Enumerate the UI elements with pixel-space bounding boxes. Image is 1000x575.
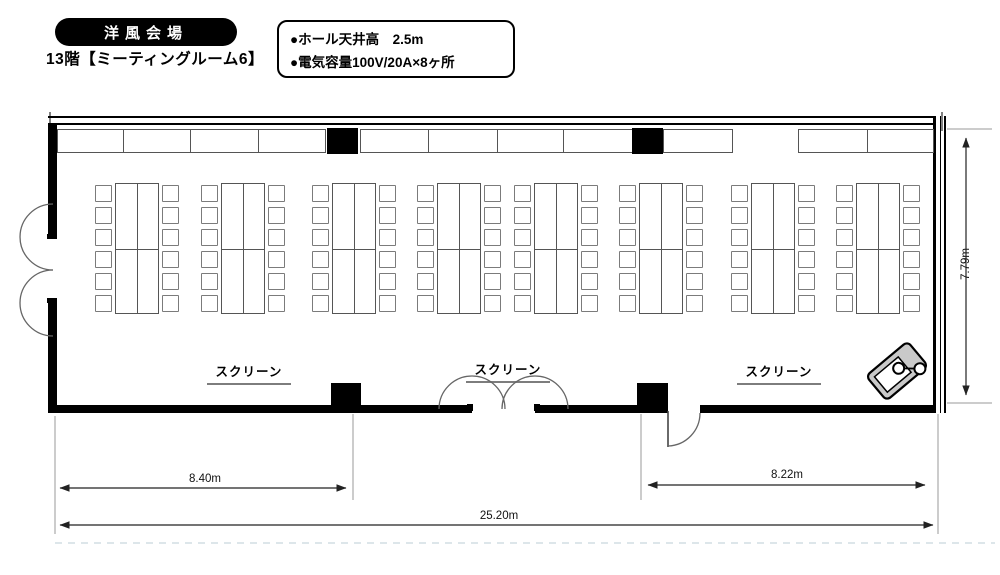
bottom-single-door — [668, 411, 700, 447]
chair-column-right — [798, 185, 815, 312]
wall-counter-cell — [57, 129, 124, 153]
left-wall-upper — [48, 124, 57, 237]
chair-column-left — [836, 185, 853, 312]
chair — [836, 185, 853, 202]
chair — [162, 185, 179, 202]
chair — [731, 251, 748, 268]
table-group — [312, 183, 396, 314]
chair — [619, 251, 636, 268]
table-group — [95, 183, 179, 314]
table-block — [856, 183, 900, 314]
chair — [581, 273, 598, 290]
top-wall — [48, 116, 945, 125]
chair — [798, 207, 815, 224]
chair — [581, 229, 598, 246]
chair — [836, 251, 853, 268]
chair — [731, 185, 748, 202]
table-block — [534, 183, 578, 314]
chair-column-left — [514, 185, 531, 312]
chair — [484, 251, 501, 268]
chair — [619, 229, 636, 246]
chair — [312, 273, 329, 290]
wall-counter-cell — [428, 129, 498, 153]
chair — [836, 295, 853, 312]
chair — [201, 207, 218, 224]
chair — [581, 207, 598, 224]
electric-capacity-line: ●電気容量100V/20A×8ヶ所 — [290, 51, 502, 71]
chair — [686, 229, 703, 246]
left-wall-lower — [48, 303, 57, 413]
facility-info-box: ●ホール天井高 2.5m ●電気容量100V/20A×8ヶ所 — [277, 20, 515, 78]
chair — [162, 229, 179, 246]
chair — [379, 295, 396, 312]
chair — [417, 251, 434, 268]
table-block — [221, 183, 265, 314]
chair — [201, 295, 218, 312]
screen-label-1: スクリーン — [207, 361, 291, 385]
chair — [581, 185, 598, 202]
wall-counter-cell — [798, 129, 868, 153]
chair — [417, 273, 434, 290]
pillar — [331, 383, 361, 413]
chair — [514, 207, 531, 224]
chair — [836, 229, 853, 246]
wall-counter-cell — [867, 129, 934, 153]
venue-type-label: 洋風会場 — [104, 22, 188, 43]
chair — [379, 273, 396, 290]
chair — [95, 207, 112, 224]
chair — [686, 207, 703, 224]
chair — [514, 229, 531, 246]
projector-icon — [866, 341, 930, 402]
chair — [268, 229, 285, 246]
chair — [514, 251, 531, 268]
pillar — [632, 128, 663, 154]
chair — [903, 295, 920, 312]
chair — [836, 207, 853, 224]
wall-counter-cell — [563, 129, 633, 153]
wall-counter-cell — [663, 129, 733, 153]
chair-column-left — [731, 185, 748, 312]
chair — [484, 273, 501, 290]
table-group — [417, 183, 501, 314]
chair — [581, 295, 598, 312]
chair — [514, 185, 531, 202]
chair — [484, 185, 501, 202]
chair-column-left — [201, 185, 218, 312]
chair — [686, 185, 703, 202]
wall-counter-cell — [258, 129, 326, 153]
chair — [95, 185, 112, 202]
chair — [686, 273, 703, 290]
chair — [731, 295, 748, 312]
dimension-right-span: 8.22m — [752, 469, 822, 481]
chair-column-right — [581, 185, 598, 312]
pillar — [327, 128, 358, 154]
chair — [514, 295, 531, 312]
table-group — [201, 183, 285, 314]
chair-column-right — [686, 185, 703, 312]
chair — [162, 207, 179, 224]
dimension-depth: 7.79m — [960, 236, 972, 292]
bottom-wall-left — [48, 405, 472, 413]
floor-room-title: 13階【ミーティングルーム6】 — [46, 47, 264, 69]
dimension-left-span: 8.40m — [170, 473, 240, 485]
chair — [312, 251, 329, 268]
floor-plan-canvas: 洋風会場 13階【ミーティングルーム6】 ●ホール天井高 2.5m ●電気容量1… — [0, 0, 1000, 575]
table-block — [751, 183, 795, 314]
table-group — [836, 183, 920, 314]
chair — [95, 229, 112, 246]
chair — [95, 295, 112, 312]
chair — [514, 273, 531, 290]
table-group — [514, 183, 598, 314]
chair — [162, 251, 179, 268]
wall-counter-cell — [360, 129, 429, 153]
chair-column-left — [312, 185, 329, 312]
chair-column-left — [417, 185, 434, 312]
chair-column-right — [379, 185, 396, 312]
chair — [686, 295, 703, 312]
chair — [201, 185, 218, 202]
chair — [619, 273, 636, 290]
chair — [268, 185, 285, 202]
table-group — [731, 183, 815, 314]
ceiling-height-line: ●ホール天井高 2.5m — [290, 28, 502, 48]
chair — [581, 251, 598, 268]
table-block — [115, 183, 159, 314]
chair — [312, 229, 329, 246]
chair — [903, 229, 920, 246]
chair-column-right — [162, 185, 179, 312]
chair — [417, 207, 434, 224]
chair — [162, 273, 179, 290]
wall-counter-cell — [123, 129, 191, 153]
chair — [903, 185, 920, 202]
pillar — [637, 383, 668, 413]
chair — [619, 207, 636, 224]
wall-counter-cell — [190, 129, 259, 153]
chair — [312, 207, 329, 224]
chair-column-right — [268, 185, 285, 312]
chair — [903, 207, 920, 224]
screen-label-2: スクリーン — [466, 359, 550, 383]
chair-column-left — [619, 185, 636, 312]
chair — [312, 185, 329, 202]
chair — [619, 185, 636, 202]
chair — [417, 295, 434, 312]
chair-column-right — [903, 185, 920, 312]
chair — [268, 295, 285, 312]
chair — [731, 273, 748, 290]
chair — [484, 295, 501, 312]
chair — [201, 229, 218, 246]
chair — [417, 185, 434, 202]
chair — [686, 251, 703, 268]
chair — [312, 295, 329, 312]
chair — [619, 295, 636, 312]
chair — [798, 185, 815, 202]
chair — [484, 207, 501, 224]
chair — [162, 295, 179, 312]
table-block — [639, 183, 683, 314]
chair — [379, 229, 396, 246]
venue-type-badge: 洋風会場 — [55, 18, 237, 46]
chair — [417, 229, 434, 246]
chair — [798, 295, 815, 312]
chair — [379, 207, 396, 224]
right-wall-window — [933, 116, 946, 413]
chair — [95, 273, 112, 290]
chair — [268, 273, 285, 290]
chair — [731, 207, 748, 224]
chair — [731, 229, 748, 246]
table-block — [437, 183, 481, 314]
chair — [201, 273, 218, 290]
wall-counter-cell — [497, 129, 564, 153]
dimension-total-span: 25.20m — [462, 510, 536, 522]
chair — [95, 251, 112, 268]
chair — [836, 273, 853, 290]
chair-column-left — [95, 185, 112, 312]
chair — [798, 251, 815, 268]
chair — [484, 229, 501, 246]
table-group — [619, 183, 703, 314]
chair — [268, 251, 285, 268]
chair-column-right — [484, 185, 501, 312]
table-block — [332, 183, 376, 314]
bottom-wall-right — [700, 405, 933, 413]
chair — [379, 185, 396, 202]
chair — [798, 229, 815, 246]
chair — [268, 207, 285, 224]
chair — [798, 273, 815, 290]
chair — [903, 251, 920, 268]
chair — [201, 251, 218, 268]
screen-label-3: スクリーン — [737, 361, 821, 385]
chair — [903, 273, 920, 290]
chair — [379, 251, 396, 268]
